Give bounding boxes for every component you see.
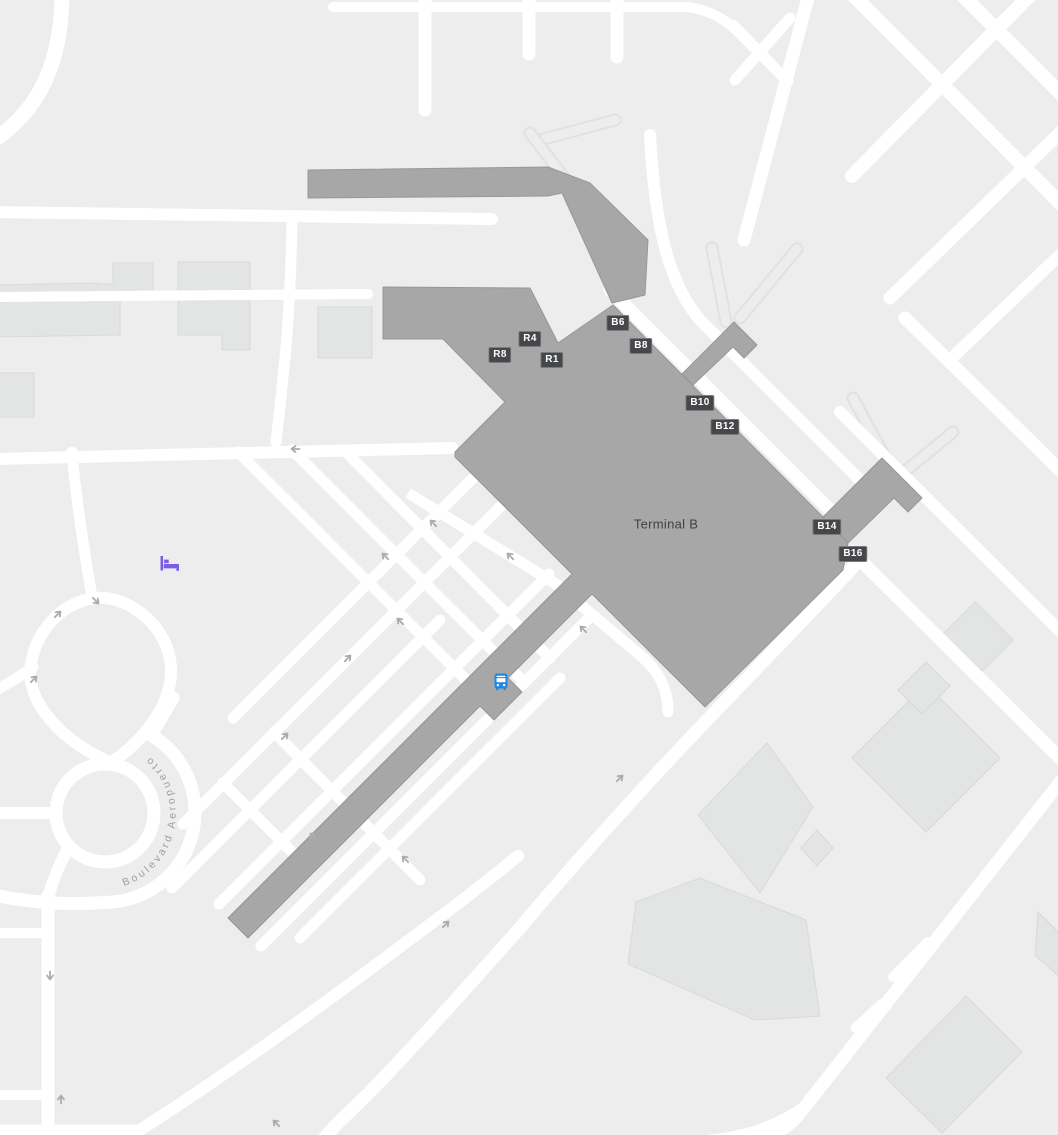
gate-label-B6[interactable]: B6 <box>606 315 629 331</box>
gate-label-B16[interactable]: B16 <box>838 546 867 562</box>
gate-label-B14[interactable]: B14 <box>812 519 841 535</box>
hotel-icon[interactable] <box>161 556 180 576</box>
gate-label-R8[interactable]: R8 <box>488 347 511 363</box>
terminal-b-label[interactable]: Terminal B <box>634 517 698 532</box>
airport-map[interactable]: Boulevard Aeropuerto R8R4R1B6B8B10B12B14… <box>0 0 1058 1135</box>
gate-label-B8[interactable]: B8 <box>629 338 652 354</box>
gate-label-R1[interactable]: R1 <box>540 352 563 368</box>
gate-label-B10[interactable]: B10 <box>685 395 714 411</box>
bus-station-icon[interactable] <box>494 673 509 696</box>
gate-label-B12[interactable]: B12 <box>710 419 739 435</box>
gate-label-R4[interactable]: R4 <box>518 331 541 347</box>
map-canvas[interactable]: Boulevard Aeropuerto <box>0 0 1058 1135</box>
